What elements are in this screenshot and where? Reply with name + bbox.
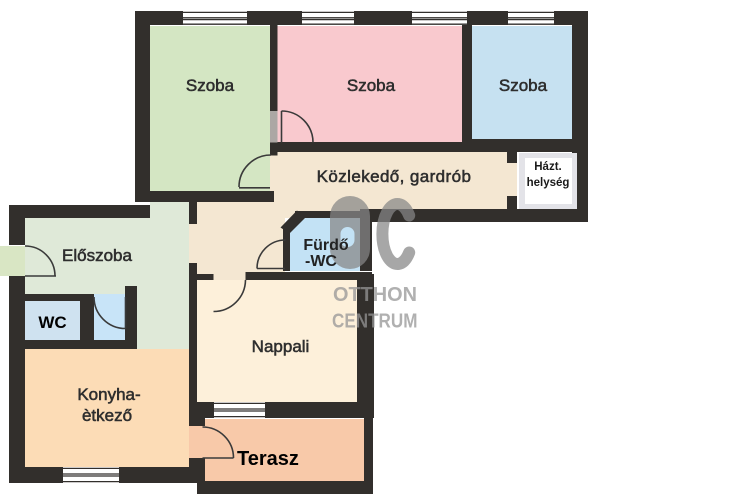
svg-text:OTTHON: OTTHON bbox=[333, 283, 417, 306]
svg-text:Szoba: Szoba bbox=[347, 76, 396, 95]
svg-text:Közlekedő, gardrób: Közlekedő, gardrób bbox=[317, 167, 472, 186]
svg-text:Fürdő: Fürdő bbox=[303, 237, 349, 254]
svg-text:-WC: -WC bbox=[305, 253, 337, 270]
svg-text:Konyha-: Konyha- bbox=[77, 385, 140, 404]
svg-text:CENTRUM: CENTRUM bbox=[332, 310, 418, 333]
svg-text:helység: helység bbox=[527, 177, 570, 189]
svg-text:Házt.: Házt. bbox=[534, 161, 561, 173]
svg-text:Terasz: Terasz bbox=[237, 448, 299, 470]
svg-text:Előszoba: Előszoba bbox=[62, 246, 132, 265]
svg-text:Nappali: Nappali bbox=[252, 337, 310, 356]
svg-text:Szoba: Szoba bbox=[186, 76, 235, 95]
svg-text:WC: WC bbox=[38, 313, 66, 332]
svg-text:Szoba: Szoba bbox=[499, 76, 548, 95]
svg-text:ètkező: ètkező bbox=[82, 406, 132, 425]
